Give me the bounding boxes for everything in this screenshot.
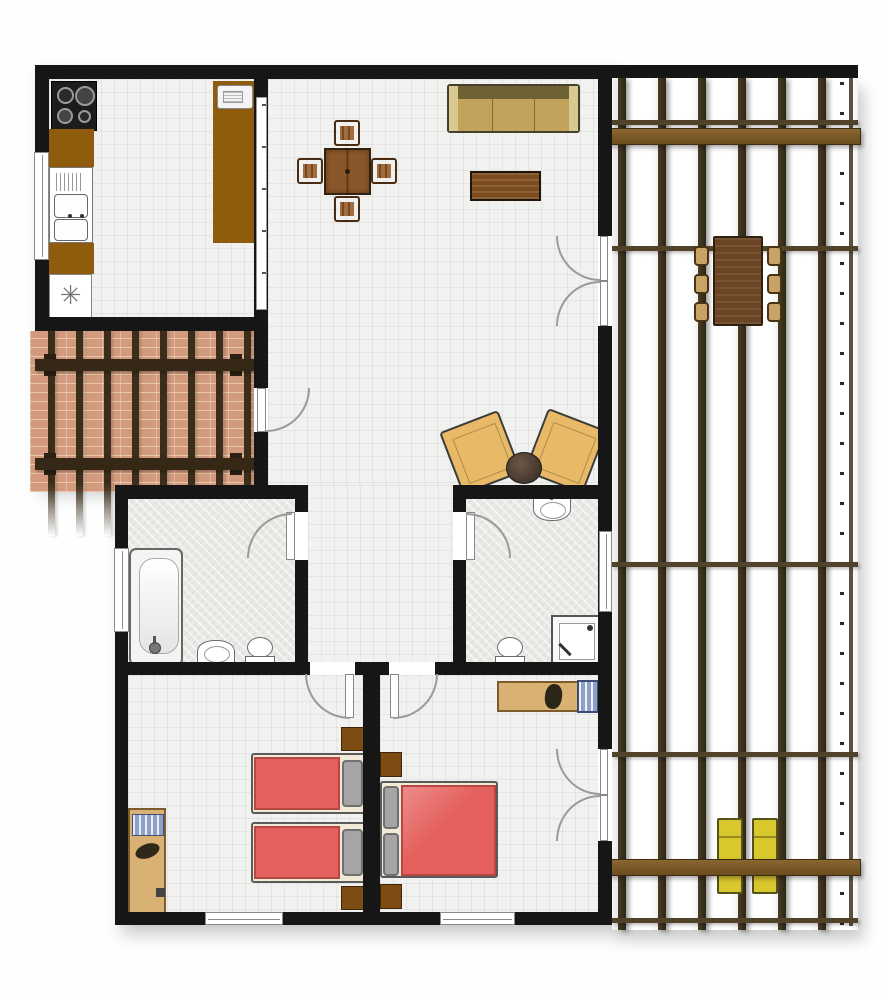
pergola-top-beam <box>612 65 858 78</box>
bathtub <box>129 548 183 666</box>
burner <box>75 86 95 106</box>
desk-papers <box>132 814 164 836</box>
microwave <box>217 85 253 109</box>
wall-bottom-2 <box>283 912 440 925</box>
double-bed-pillow <box>383 786 399 829</box>
patio-door-leaf <box>257 388 266 432</box>
pergola-post <box>698 78 706 930</box>
burner <box>78 110 91 123</box>
outdoor-chair <box>767 246 782 266</box>
pergola-post <box>618 78 626 930</box>
wall-bottom-1 <box>115 912 205 925</box>
living-french-door-leaf <box>600 236 608 281</box>
double-bed-pillow <box>383 833 399 876</box>
sun-lounger <box>752 818 778 894</box>
bathroom-1-door-opening <box>295 512 308 560</box>
bathtub-basin <box>139 558 179 654</box>
pergola-dot-rail <box>840 82 844 926</box>
desk <box>128 808 166 918</box>
sun-lounger <box>717 818 743 894</box>
dining-chair <box>371 158 397 184</box>
sofa-back <box>449 86 578 99</box>
desk-object <box>133 840 161 862</box>
sofa <box>447 84 580 133</box>
kitchen-sink <box>49 167 93 243</box>
shower <box>551 615 600 665</box>
sofa-armrest <box>449 86 458 131</box>
pergola-brown-beam <box>609 128 861 145</box>
floor-plan-canvas: ✳ <box>0 0 882 1000</box>
wall-bedroom-divider <box>363 662 380 925</box>
twin-bed-2-blanket <box>254 826 340 879</box>
bedroom-french-door-leaf <box>600 795 608 841</box>
kitchen-counter <box>49 129 94 167</box>
dining-chair <box>297 158 323 184</box>
kitchen-counter <box>49 243 94 274</box>
sink-basin <box>54 219 88 241</box>
stove <box>51 81 97 131</box>
refrigerator: ✳ <box>49 274 92 318</box>
sink-tap <box>68 214 72 218</box>
sink-tap <box>80 214 84 218</box>
outdoor-chair <box>694 274 709 294</box>
desk <box>497 681 581 712</box>
pergola-rail <box>612 918 858 923</box>
outdoor-chair <box>767 302 782 322</box>
round-side-table <box>506 452 542 484</box>
toilet-bowl <box>497 637 523 658</box>
burner <box>57 87 74 104</box>
bathtub-faucet-stem <box>153 636 156 644</box>
drainboard <box>56 173 84 191</box>
coffee-table <box>470 171 541 201</box>
microwave-screen <box>223 91 243 103</box>
dining-table <box>324 148 371 195</box>
nightstand <box>380 752 402 777</box>
dining-chair <box>334 196 360 222</box>
kitchen-window <box>34 152 49 260</box>
pergola-rail <box>612 752 858 757</box>
living-french-door-leaf <box>600 281 608 326</box>
bathroom-1-window <box>114 548 129 632</box>
bedroom-french-door-leaf <box>600 749 608 795</box>
bathroom-2-window <box>599 531 612 612</box>
pergola-right-rail <box>849 70 853 926</box>
hallway-floor <box>308 485 453 675</box>
dining-chair <box>334 120 360 146</box>
wall-bath1-top <box>115 485 308 499</box>
outdoor-dining-table <box>713 236 763 326</box>
outdoor-chair <box>694 246 709 266</box>
armchair-seat-line <box>452 423 512 484</box>
pergola-post <box>818 78 826 930</box>
pergola-post <box>738 78 746 930</box>
shower-head <box>587 625 593 631</box>
pass-through-ticks <box>262 104 266 304</box>
sofa-cushion-line <box>492 99 493 131</box>
nightstand <box>380 884 402 909</box>
pergola-post <box>658 78 666 930</box>
pergola-rail <box>612 120 858 125</box>
toilet-bowl <box>247 637 273 658</box>
basin-bowl <box>204 646 230 663</box>
twin-bed-2-pillow <box>342 829 363 876</box>
bedroom-1-window <box>205 912 283 925</box>
sofa-armrest <box>569 86 578 131</box>
wall-kitchen-bottom <box>35 317 266 331</box>
wall-bath1-bottom <box>115 662 310 675</box>
blue-cabinet <box>577 680 599 713</box>
outdoor-chair <box>694 302 709 322</box>
sofa-cushion-line <box>534 99 535 131</box>
twin-bed-1-pillow <box>342 760 363 807</box>
wall-bath2-bottom <box>435 662 612 675</box>
basin-bowl <box>540 502 566 519</box>
pergola-brown-beam <box>609 859 861 876</box>
twin-bed-1-blanket <box>254 757 340 810</box>
wall-top <box>35 65 612 79</box>
bedroom-2-window <box>440 912 515 925</box>
kitchen-pass-through <box>256 97 267 310</box>
bathroom-2-door-opening <box>453 512 466 560</box>
burner <box>57 108 73 124</box>
table-knob <box>345 169 350 174</box>
double-bed-blanket <box>401 785 496 876</box>
pergola-rail <box>612 562 858 567</box>
pergola-post <box>778 78 786 930</box>
wall-bottom-3 <box>515 912 612 925</box>
patio-cross-beam <box>35 458 259 470</box>
wall-bath2-top <box>453 485 612 499</box>
desk-knob <box>156 888 165 897</box>
outdoor-chair <box>767 274 782 294</box>
fridge-symbol: ✳ <box>60 283 82 309</box>
armchair-seat-line <box>536 422 597 484</box>
patio-cross-beam <box>35 359 259 371</box>
